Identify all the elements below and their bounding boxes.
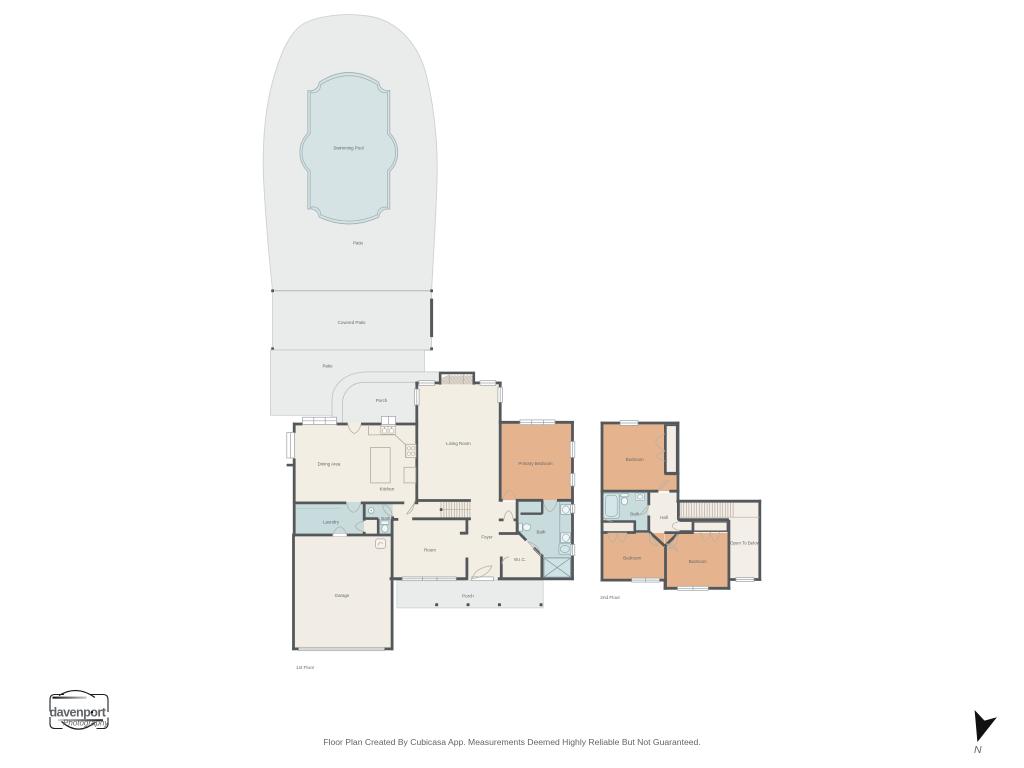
svg-text:Bedroom: Bedroom [689,559,707,564]
svg-text:Covered Patio: Covered Patio [338,320,366,325]
svg-text:W.I.C.: W.I.C. [514,557,526,562]
svg-text:Porch: Porch [462,594,474,599]
svg-text:Bath: Bath [381,516,391,521]
svg-text:1st Floor: 1st Floor [296,665,315,670]
svg-text:Bath: Bath [630,511,640,516]
svg-text:Swimming Pool: Swimming Pool [333,146,363,151]
svg-text:Laundry: Laundry [323,520,340,525]
svg-text:Porch: Porch [376,398,388,403]
svg-text:davenport: davenport [50,706,107,720]
svg-text:Living Room: Living Room [446,441,471,446]
svg-text:2nd Floor: 2nd Floor [600,595,620,600]
svg-text:Dining Area: Dining Area [318,462,341,467]
svg-text:Bedroom: Bedroom [623,555,641,560]
svg-text:Garage: Garage [335,593,350,598]
svg-text:Foyer: Foyer [481,535,493,540]
svg-text:Hall: Hall [660,515,668,520]
svg-text:Floor Plan Created By Cubicasa: Floor Plan Created By Cubicasa App. Meas… [323,737,700,747]
svg-text:Patio: Patio [322,363,333,368]
svg-text:Photography: Photography [63,719,109,728]
svg-text:Patio: Patio [353,241,364,246]
svg-text:Bedroom: Bedroom [626,457,644,462]
svg-text:Room: Room [424,548,436,553]
svg-text:N: N [974,744,982,756]
svg-text:Open To Below: Open To Below [730,540,761,545]
svg-text:Bath: Bath [536,529,546,534]
svg-text:Kitchen: Kitchen [380,487,395,492]
svg-text:Primary Bedroom: Primary Bedroom [518,461,553,466]
